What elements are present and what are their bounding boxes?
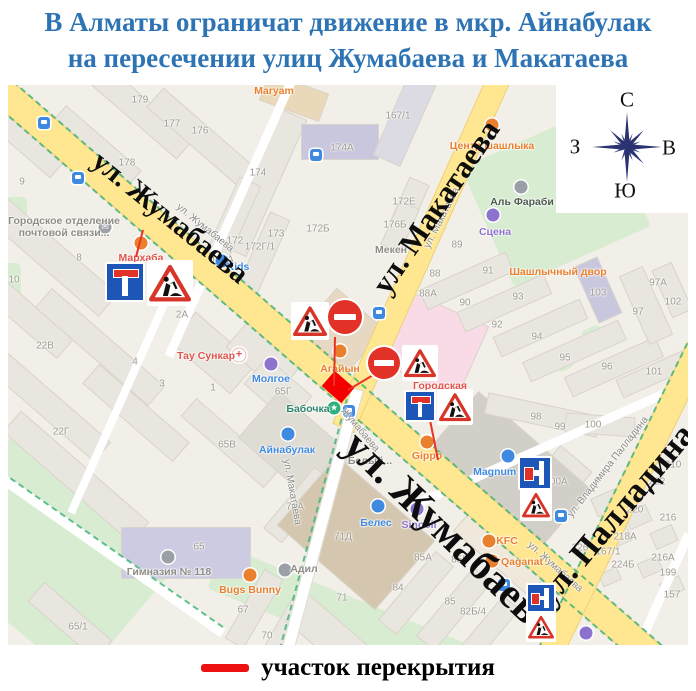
legend-label: участок перекрытия: [261, 654, 495, 682]
building-number-label: 82Б/4: [460, 607, 486, 618]
building-number-label: 84: [392, 583, 403, 594]
building-number-label: 65/1: [68, 622, 87, 633]
poi-label: Агайын: [320, 363, 360, 375]
dead-end-sign: [105, 262, 145, 302]
poi-icon: [502, 450, 515, 463]
poi-icon: [334, 345, 347, 358]
poi-icon: [421, 436, 434, 449]
building-number-label: 157: [664, 590, 681, 601]
roadwork-sign: [520, 489, 552, 521]
dead-end-side-sign: [526, 583, 556, 613]
building-number-label: 9: [19, 177, 25, 188]
building-number-label: 92: [491, 320, 502, 331]
building-number-label: 85: [444, 597, 455, 608]
compass-rose: С З В Ю: [556, 85, 688, 213]
building-number-label: 216: [660, 513, 677, 524]
building-number-label: 172Е: [392, 197, 415, 208]
building-number-label: 173: [268, 229, 285, 240]
building-number-label: 97А: [649, 278, 667, 289]
dead-end-side-sign: [518, 456, 552, 490]
building-number-label: 216А: [651, 553, 674, 564]
building-number-label: 22В: [36, 341, 54, 352]
poi-label: KFC: [496, 535, 518, 547]
poi-label: Гимназия № 118: [127, 566, 212, 578]
map-building: [373, 85, 439, 167]
poi-label: Адил: [290, 563, 317, 575]
building-number-label: 99: [554, 422, 565, 433]
building-number-label: 95: [559, 353, 570, 364]
building-number-label: 65: [193, 542, 204, 553]
no-entry-sign: [368, 347, 400, 379]
poi-label: Bugs Bunny: [219, 584, 281, 596]
building-number-label: 224Б: [611, 560, 634, 571]
building-number-label: 67: [237, 605, 248, 616]
building-number-label: 10: [8, 275, 19, 286]
building-number-label: 71Д: [334, 532, 352, 543]
building-number-label: 65В: [218, 440, 236, 451]
compass-north-label: С: [620, 88, 634, 113]
building-number-label: 167/1: [385, 111, 410, 122]
poi-label: Шашлычный двор: [509, 266, 606, 278]
building-number-label: 172Г/1: [245, 242, 275, 253]
poi-icon: [265, 358, 278, 371]
building-number-label: 85А: [414, 553, 432, 564]
building-number-label: 65Г: [275, 387, 292, 398]
roadwork-sign: [147, 260, 193, 306]
building-number-label: 172Б: [306, 224, 329, 235]
building-number-label: 101: [646, 367, 663, 378]
roadwork-sign: [437, 389, 473, 425]
compass-east-label: В: [662, 136, 676, 161]
building-number-label: 70: [261, 631, 272, 642]
poi-icon: [282, 428, 295, 441]
compass-west-label: З: [570, 135, 581, 160]
building-number-label: 199: [660, 568, 677, 579]
poi-label: Gippo: [412, 450, 442, 462]
building-number-label: 88А: [419, 289, 437, 300]
building-number-label: 8: [76, 253, 82, 264]
poi-label: Городское отделение почтовой связи...: [8, 215, 120, 239]
poi-label: Бабочка: [286, 403, 329, 415]
no-entry-sign: [328, 300, 362, 334]
building-number-label: 97: [632, 307, 643, 318]
poi-label: Аль Фараби: [490, 196, 554, 208]
closure-line-swatch: [201, 664, 249, 672]
page-title: В Алматы ограничат движение в мкр. Айнаб…: [0, 0, 696, 76]
building-number-label: 91: [482, 266, 493, 277]
dead-end-sign: [404, 390, 436, 422]
building-number-label: 4: [132, 357, 138, 368]
roadwork-sign: [291, 302, 329, 340]
building-number-label: 22Г: [53, 427, 70, 438]
poi-icon: [162, 551, 175, 564]
building-number-label: 71: [336, 593, 347, 604]
building-number-label: 100: [585, 420, 602, 431]
building-number-label: 93: [512, 292, 523, 303]
poi-icon: [487, 209, 500, 222]
building-number-label: 88: [429, 269, 440, 280]
poi-label: Айнабулак: [259, 444, 315, 456]
poi-icon: [244, 569, 257, 582]
building-number-label: 174А: [330, 143, 353, 154]
roadwork-sign: [526, 612, 556, 642]
building-number-label: 1: [210, 383, 216, 394]
building-number-label: 2А: [176, 310, 188, 321]
building-number-label: 94: [531, 332, 542, 343]
poi-icon: [135, 237, 148, 250]
building-number-label: 179: [132, 95, 149, 106]
building-number-label: 177: [164, 119, 181, 130]
building-number-label: 96: [601, 362, 612, 373]
infographic: В Алматы ограничат движение в мкр. Айнаб…: [0, 0, 696, 691]
title-line-2: на пересечении улиц Жумабаева и Макатаев…: [0, 40, 696, 76]
poi-label: Молгое: [252, 373, 290, 385]
compass-star-icon: [590, 110, 664, 184]
building-number-label: 98: [530, 412, 541, 423]
bus-stop-icon: [38, 117, 50, 129]
poi-label: Сцена: [479, 226, 511, 238]
poi-label: Белес: [360, 517, 391, 529]
bus-stop-icon: [310, 149, 322, 161]
roadwork-sign: [402, 345, 438, 381]
building-number-label: 89: [451, 240, 462, 251]
poi-icon: [515, 181, 528, 194]
building-number-label: 3: [159, 379, 165, 390]
map-building: [649, 524, 678, 550]
poi-label: Maryam: [254, 85, 294, 97]
building-number-label: 90: [459, 298, 470, 309]
legend: участок перекрытия: [0, 645, 696, 691]
poi-label: Тау Сункар: [177, 350, 235, 362]
poi-label: P: [580, 627, 593, 640]
bus-stop-icon: [72, 172, 84, 184]
building-number-label: 102: [665, 297, 682, 308]
title-line-1: В Алматы ограничат движение в мкр. Айнаб…: [0, 4, 696, 40]
bus-stop-icon: [373, 307, 385, 319]
building-number-label: 103: [590, 288, 607, 299]
building-number-label: 176: [192, 126, 209, 137]
building-number-label: 174: [250, 168, 267, 179]
